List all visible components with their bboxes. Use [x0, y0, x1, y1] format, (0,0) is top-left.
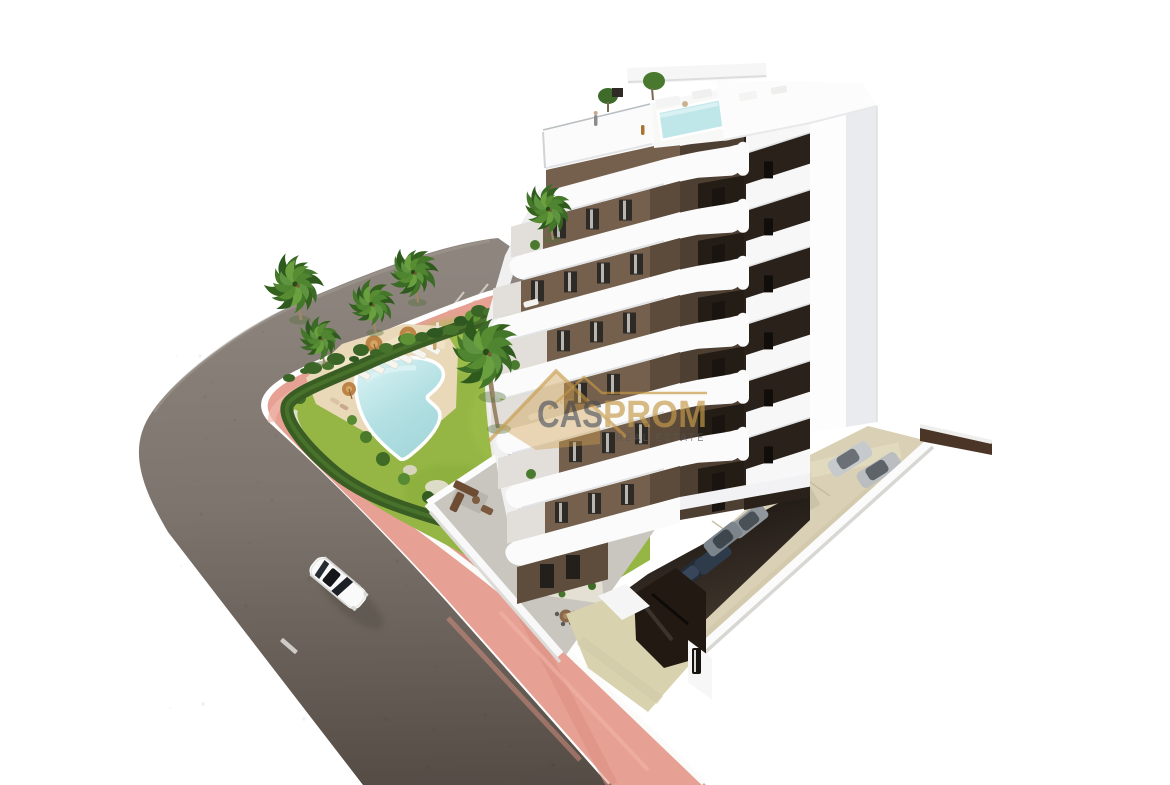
svg-text:PROM: PROM [603, 394, 707, 436]
svg-text:REAL ESTATE: REAL ESTATE [616, 432, 706, 444]
svg-text:CAS: CAS [537, 394, 603, 436]
